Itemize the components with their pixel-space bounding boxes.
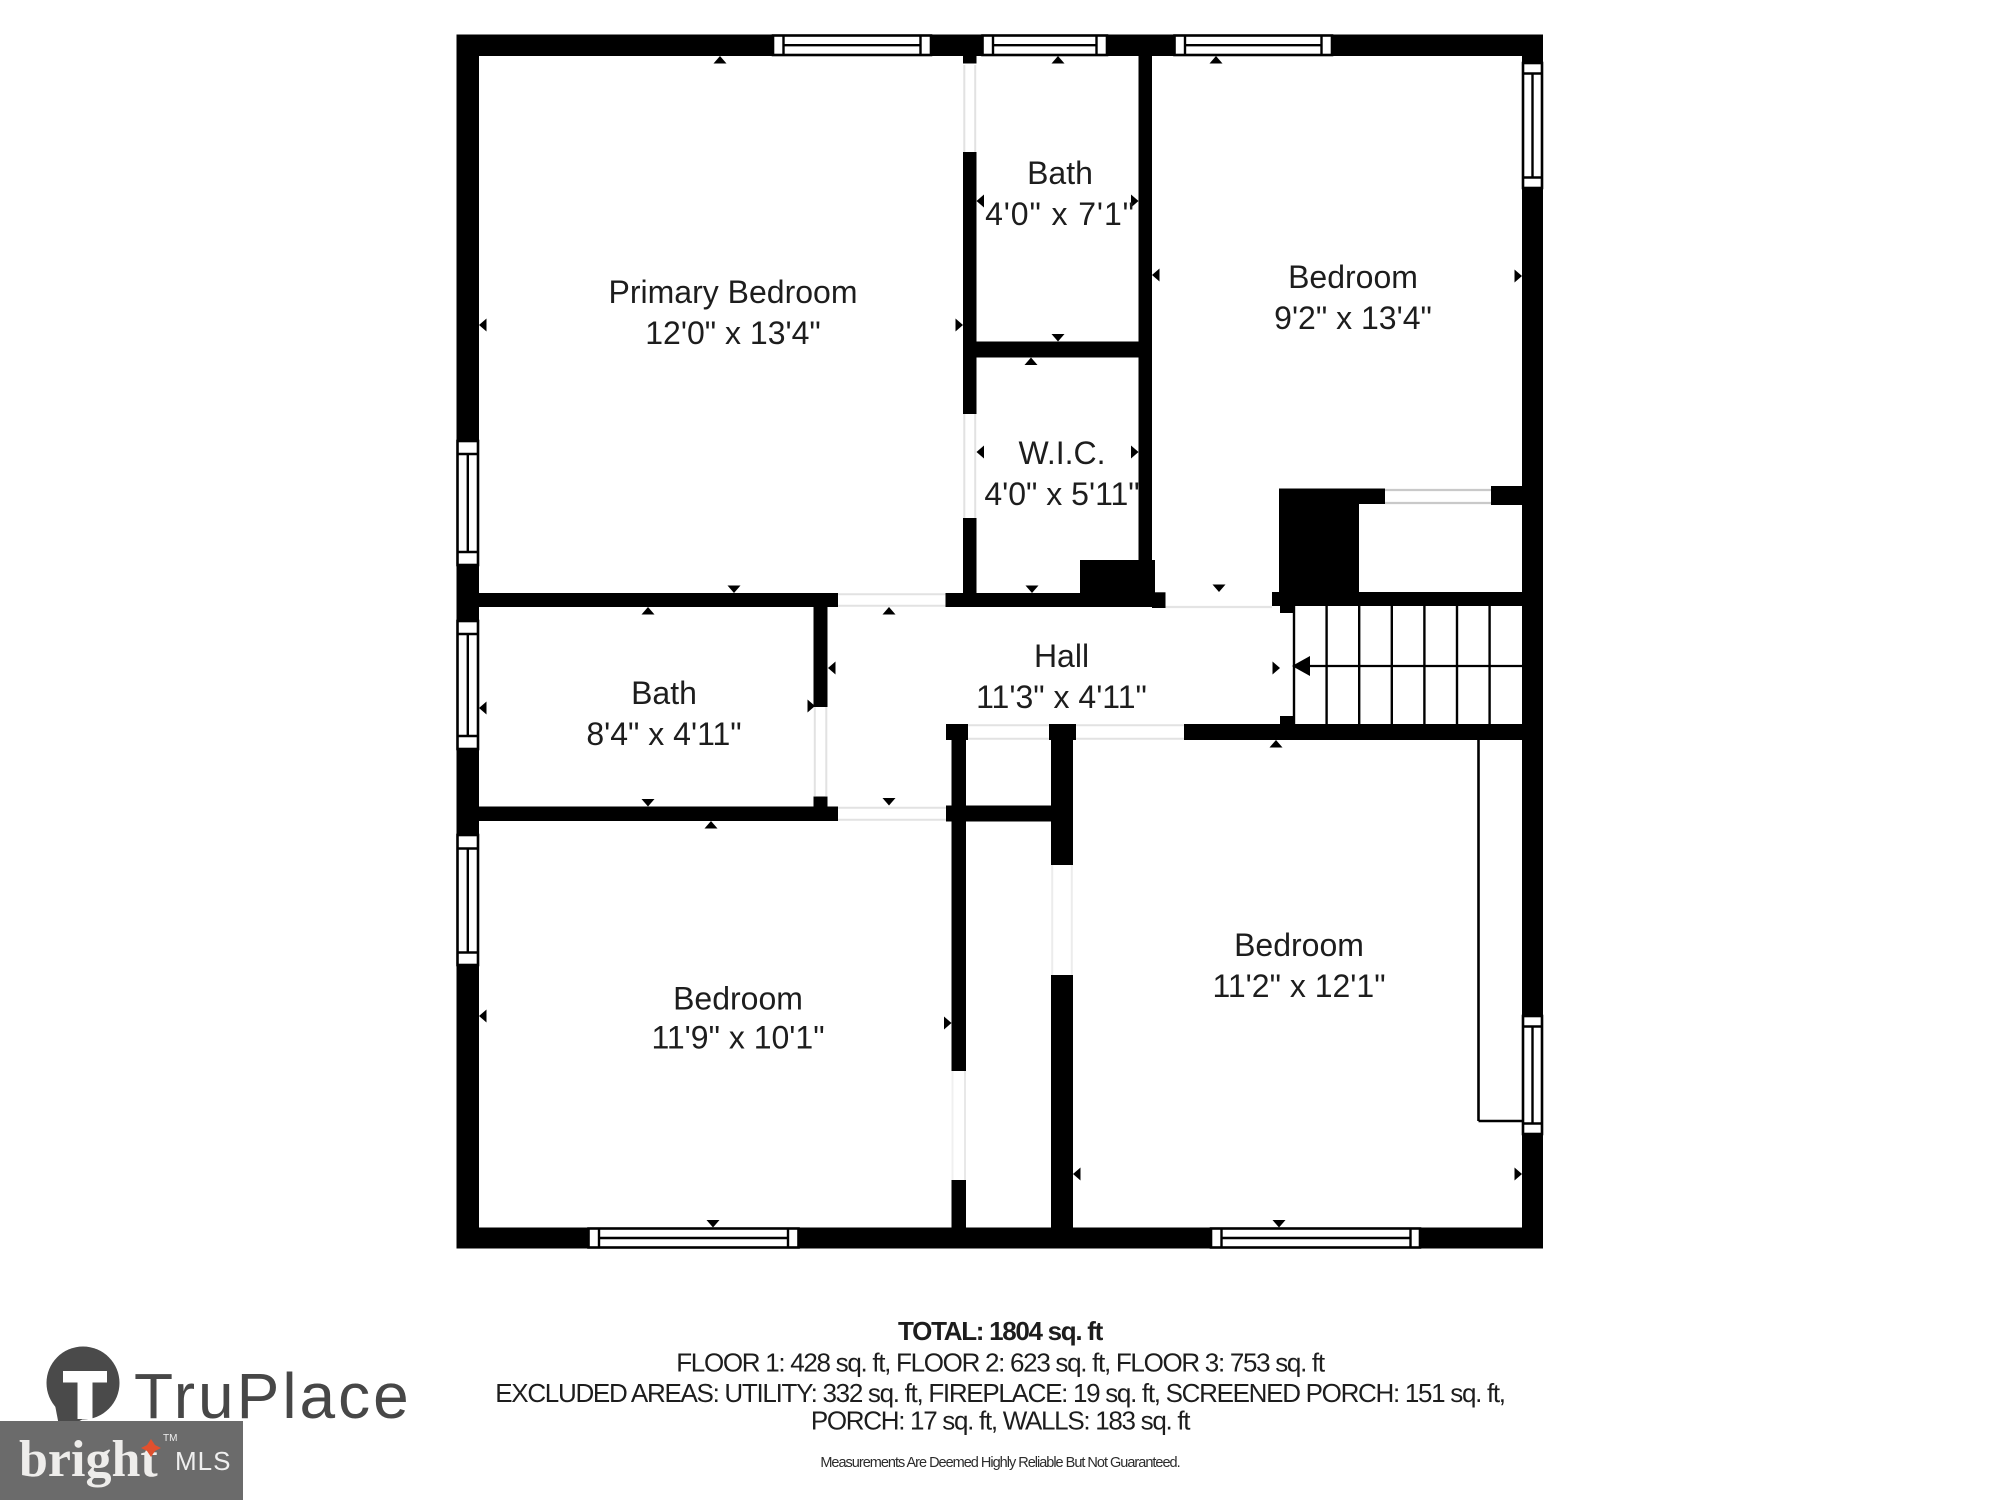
svg-text:4'0" x 5'11": 4'0" x 5'11": [984, 476, 1139, 512]
svg-text:EXCLUDED AREAS: UTILITY: 332 s: EXCLUDED AREAS: UTILITY: 332 sq. ft, FIR…: [495, 1378, 1504, 1408]
svg-text:W.I.C.: W.I.C.: [1018, 435, 1105, 471]
svg-text:MLS: MLS: [175, 1446, 231, 1476]
svg-text:bright: bright: [19, 1431, 158, 1488]
svg-text:Primary Bedroom: Primary Bedroom: [609, 274, 858, 310]
svg-text:TOTAL: 1804 sq. ft: TOTAL: 1804 sq. ft: [898, 1316, 1104, 1346]
svg-text:FLOOR 1: 428 sq. ft, FLOOR 2:: FLOOR 1: 428 sq. ft, FLOOR 2: 623 sq. ft…: [676, 1347, 1326, 1377]
svg-text:PORCH: 17 sq. ft, WALLS: 183 s: PORCH: 17 sq. ft, WALLS: 183 sq. ft: [811, 1406, 1191, 1436]
svg-text:Bath: Bath: [631, 675, 697, 711]
svg-text:9'2" x 13'4": 9'2" x 13'4": [1274, 300, 1432, 336]
svg-text:12'0" x 13'4": 12'0" x 13'4": [645, 315, 821, 351]
svg-text:Measurements Are Deemed Highly: Measurements Are Deemed Highly Reliable …: [820, 1455, 1179, 1471]
svg-text:Bedroom: Bedroom: [673, 981, 803, 1017]
svg-text:Bath: Bath: [1027, 155, 1093, 191]
svg-text:Hall: Hall: [1034, 638, 1089, 674]
svg-text:Bedroom: Bedroom: [1288, 259, 1418, 295]
svg-text:11'2" x 12'1": 11'2" x 12'1": [1212, 968, 1385, 1004]
svg-text:8'4" x 4'11": 8'4" x 4'11": [586, 716, 741, 752]
svg-text:11'3" x 4'11": 11'3" x 4'11": [976, 679, 1147, 715]
svg-text:11'9" x 10'1": 11'9" x 10'1": [651, 1020, 824, 1056]
svg-text:4'0" x 7'1": 4'0" x 7'1": [985, 196, 1135, 232]
svg-text:TM: TM: [163, 1433, 177, 1444]
svg-text:Bedroom: Bedroom: [1234, 927, 1364, 963]
